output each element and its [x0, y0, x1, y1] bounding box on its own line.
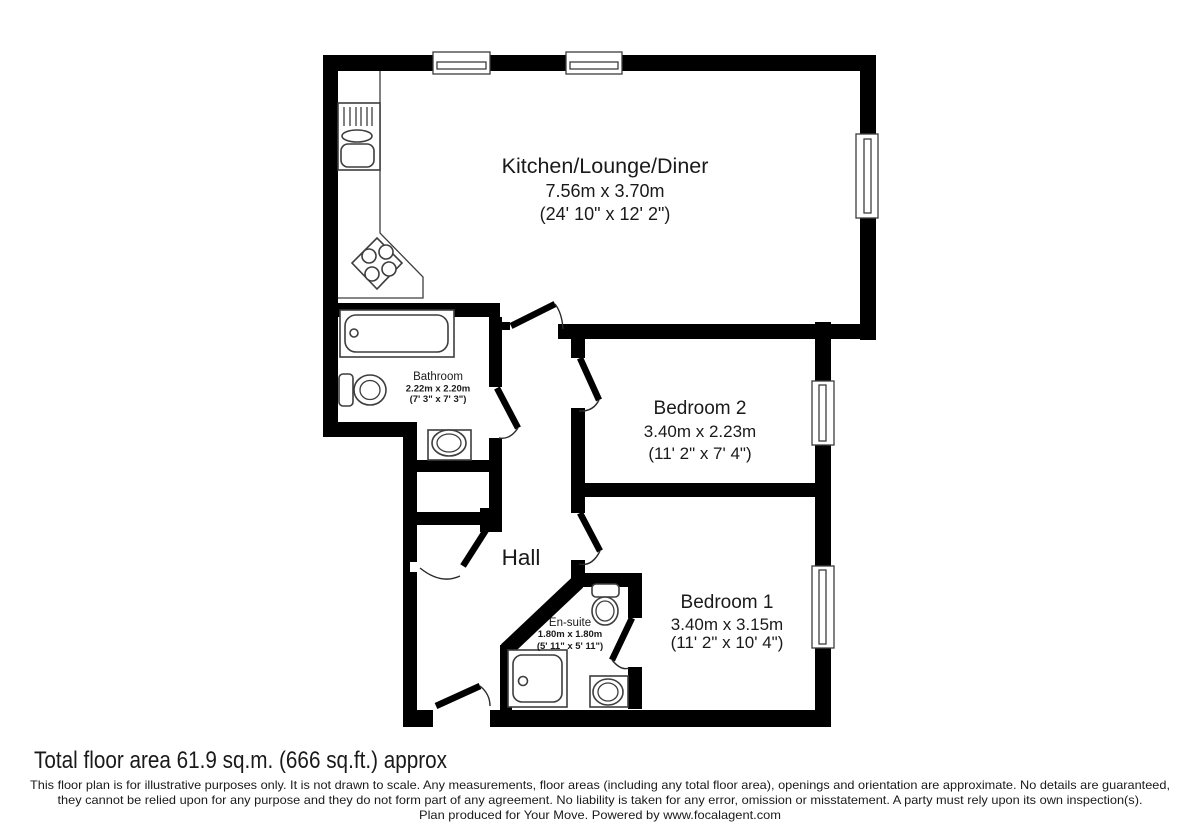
disclaimer-line-3: Plan produced for Your Move. Powered by …: [419, 808, 781, 822]
wall-segment: [628, 587, 642, 618]
wall-segment: [571, 337, 585, 358]
door-swing-entrance: [436, 686, 490, 706]
disclaimer-line-2: they cannot be relied upon for any purpo…: [58, 793, 1143, 807]
kitchen-sink: [338, 103, 380, 170]
wall-notch: [410, 562, 418, 572]
room-label-hall: Hall: [502, 545, 541, 570]
window: [812, 381, 834, 445]
window: [812, 566, 834, 648]
window: [856, 134, 878, 218]
door-leaf: [580, 358, 599, 400]
wall-segment: [558, 324, 876, 339]
shower-tray: [508, 650, 567, 707]
room-label-bathroom: Bathroom 2.22m x 2.20m (7' 3" x 7' 3"): [406, 371, 470, 405]
floorplan-page: Kitchen/Lounge/Diner 7.56m x 3.70m (24' …: [0, 0, 1200, 840]
door-arc: [499, 428, 518, 438]
room-name: Bathroom: [413, 371, 463, 383]
wall-segment: [502, 322, 510, 330]
toilet: [592, 584, 619, 625]
wall-segment: [628, 667, 642, 709]
door-swing-cupboard: [420, 530, 486, 579]
wall-segment: [490, 710, 831, 727]
door-leaf: [436, 686, 480, 706]
disclaimer-line-1: This floor plan is for illustrative purp…: [30, 778, 1170, 792]
door-arc: [612, 660, 629, 669]
room-dim-metric: 3.40m x 3.15m: [671, 615, 783, 634]
room-dim-imperial: (11' 2" x 7' 4"): [648, 444, 751, 463]
wall-segment: [323, 55, 338, 437]
toilet: [339, 374, 386, 406]
door-leaf: [612, 618, 632, 660]
door-swing-bedroom1: [579, 513, 600, 564]
room-label-ensuite: En-suite 1.80m x 1.80m (5' 11" x 5' 11"): [537, 617, 603, 652]
wall-segment: [489, 317, 502, 387]
room-name: Bedroom 1: [681, 592, 774, 613]
wall-segment: [489, 438, 502, 520]
room-dim-imperial: (24' 10" x 12' 2"): [540, 204, 671, 224]
room-label-kitchen: Kitchen/Lounge/Diner 7.56m x 3.70m (24' …: [502, 154, 709, 224]
room-dim-metric: 1.80m x 1.80m: [538, 629, 602, 640]
door-swing-bedroom2: [579, 358, 599, 411]
room-dim-imperial: (5' 11" x 5' 11"): [537, 641, 603, 652]
wash-basin: [428, 430, 471, 460]
hob: [352, 238, 402, 289]
wall-segment: [403, 422, 417, 727]
door-leaf: [497, 388, 518, 428]
door-leaf: [580, 513, 600, 551]
door-arc: [420, 568, 460, 579]
door-leaf: [511, 304, 555, 326]
floor-plan-canvas: Kitchen/Lounge/Diner 7.56m x 3.70m (24' …: [0, 0, 1200, 840]
wash-basin: [590, 676, 628, 707]
door-swing-kitchen: [511, 304, 563, 329]
footer: Total floor area 61.9 sq.m. (666 sq.ft.)…: [30, 747, 1170, 822]
room-name: Kitchen/Lounge/Diner: [502, 154, 709, 178]
room-dim-metric: 7.56m x 3.70m: [545, 181, 664, 201]
window: [566, 52, 622, 74]
wall-segment: [403, 710, 433, 727]
room-dim-imperial: (7' 3" x 7' 3"): [410, 394, 467, 405]
room-name: Bedroom 2: [654, 398, 747, 419]
wall-segment: [571, 408, 585, 483]
window: [433, 52, 490, 74]
door-leaf: [463, 530, 486, 566]
room-label-bedroom2: Bedroom 2 3.40m x 2.23m (11' 2" x 7' 4"): [644, 398, 756, 463]
door-swing-bathroom: [497, 388, 518, 438]
room-label-bedroom1: Bedroom 1 3.40m x 3.15m (11' 2" x 10' 4"…: [671, 592, 784, 652]
room-name: En-suite: [549, 617, 591, 629]
bathtub: [340, 310, 454, 357]
wall-segment: [405, 512, 488, 525]
door-arc: [480, 686, 490, 706]
wall-segment: [323, 422, 403, 437]
wall-segment: [571, 483, 831, 497]
room-name: Hall: [502, 545, 541, 570]
room-dim-metric: 2.22m x 2.20m: [406, 384, 470, 395]
total-area-text: Total floor area 61.9 sq.m. (666 sq.ft.)…: [34, 747, 447, 774]
wall-segment: [417, 460, 493, 472]
wall-segment: [571, 497, 585, 513]
door-swing-ensuite: [612, 618, 632, 669]
room-dim-imperial: (11' 2" x 10' 4"): [671, 633, 784, 652]
room-dim-metric: 3.40m x 2.23m: [644, 422, 756, 441]
